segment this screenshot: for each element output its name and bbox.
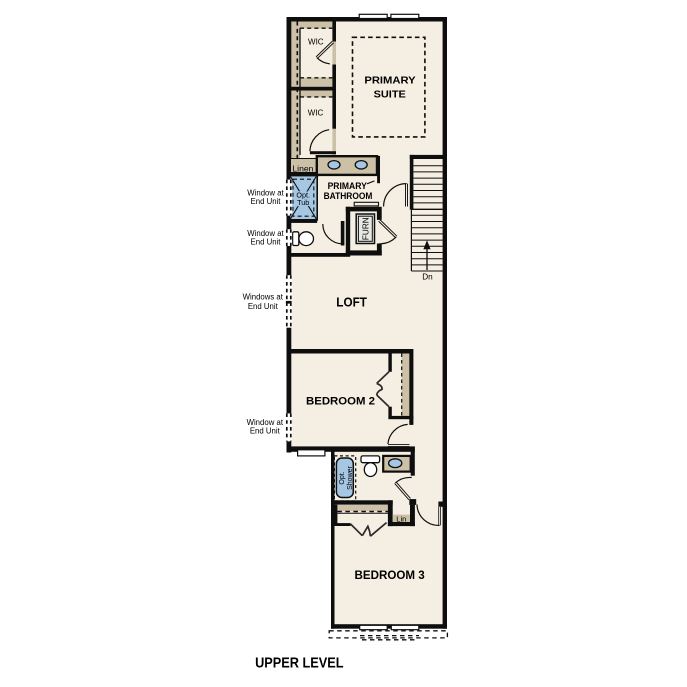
svg-text:End Unit: End Unit: [248, 302, 279, 311]
svg-text:WIC: WIC: [308, 109, 324, 118]
svg-text:BEDROOM 2: BEDROOM 2: [306, 396, 375, 408]
svg-text:FURN: FURN: [361, 217, 370, 240]
svg-text:End Unit: End Unit: [251, 238, 282, 247]
svg-text:Shower: Shower: [347, 465, 354, 489]
svg-text:PRIMARY: PRIMARY: [328, 181, 367, 191]
svg-text:SUITE: SUITE: [374, 89, 406, 101]
svg-text:LOFT: LOFT: [336, 296, 367, 310]
svg-text:BATHROOM: BATHROOM: [324, 191, 373, 201]
svg-text:End Unit: End Unit: [251, 197, 282, 206]
svg-text:UPPER LEVEL: UPPER LEVEL: [255, 654, 343, 671]
svg-text:Linen: Linen: [292, 164, 313, 173]
svg-text:Tub: Tub: [297, 198, 309, 207]
svg-text:WIC: WIC: [308, 37, 324, 46]
svg-text:Dn: Dn: [422, 273, 433, 282]
svg-text:End Unit: End Unit: [250, 427, 281, 436]
svg-text:Windows at: Windows at: [243, 293, 284, 302]
svg-text:BEDROOM 3: BEDROOM 3: [355, 569, 426, 582]
svg-text:PRIMARY: PRIMARY: [364, 74, 415, 86]
svg-text:Lin: Lin: [396, 514, 406, 523]
svg-text:Opt.: Opt.: [339, 471, 346, 484]
